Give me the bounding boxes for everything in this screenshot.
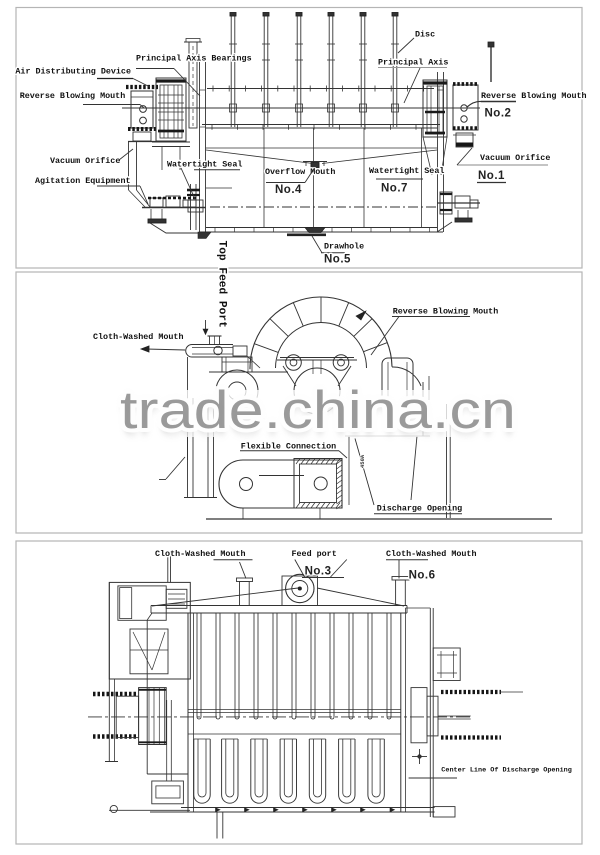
svg-text:Drawhole: Drawhole xyxy=(324,242,364,252)
svg-text:Top Feed Port: Top Feed Port xyxy=(216,241,228,328)
svg-text:Cloth-Washed Mouth: Cloth-Washed Mouth xyxy=(155,549,245,559)
svg-text:Agitation Equipment: Agitation Equipment xyxy=(35,176,131,186)
svg-text:Disc: Disc xyxy=(415,30,435,40)
svg-text:Vacuum Orifice: Vacuum Orifice xyxy=(50,156,120,166)
svg-text:Overflow Mouth: Overflow Mouth xyxy=(265,167,335,177)
svg-text:Vacuum Orifice: Vacuum Orifice xyxy=(480,153,550,163)
svg-text:Reverse Blowing Mouth: Reverse Blowing Mouth xyxy=(393,307,499,317)
svg-text:450A: 450A xyxy=(359,454,366,468)
svg-text:Air Distributing Device: Air Distributing Device xyxy=(15,66,131,76)
svg-text:Principal Axis Bearings: Principal Axis Bearings xyxy=(136,54,252,64)
svg-text:trade.china.cn: trade.china.cn xyxy=(120,381,516,440)
svg-text:No.2: No.2 xyxy=(485,107,512,119)
svg-text:No.6: No.6 xyxy=(409,570,436,582)
svg-text:Watertight Seal: Watertight Seal xyxy=(369,166,444,176)
svg-text:Discharge Opening: Discharge Opening xyxy=(377,504,462,514)
svg-text:No.1: No.1 xyxy=(478,170,505,182)
svg-text:No.3: No.3 xyxy=(305,566,332,578)
svg-text:No.5: No.5 xyxy=(324,254,351,266)
svg-text:Cloth-Washed Mouth: Cloth-Washed Mouth xyxy=(93,332,183,342)
svg-text:Watertight Seal: Watertight Seal xyxy=(167,159,242,169)
svg-text:Feed port: Feed port xyxy=(292,549,337,559)
svg-text:Reverse Blowing Mouth: Reverse Blowing Mouth xyxy=(20,91,126,101)
svg-text:Center Line Of Discharge Openi: Center Line Of Discharge Opening xyxy=(441,766,572,774)
svg-text:Principal Axis: Principal Axis xyxy=(378,57,448,67)
svg-text:No.4: No.4 xyxy=(275,184,302,196)
svg-text:Cloth-Washed Mouth: Cloth-Washed Mouth xyxy=(386,549,476,559)
svg-text:Reverse Blowing Mouth: Reverse Blowing Mouth xyxy=(481,91,587,101)
svg-text:No.7: No.7 xyxy=(381,182,408,194)
